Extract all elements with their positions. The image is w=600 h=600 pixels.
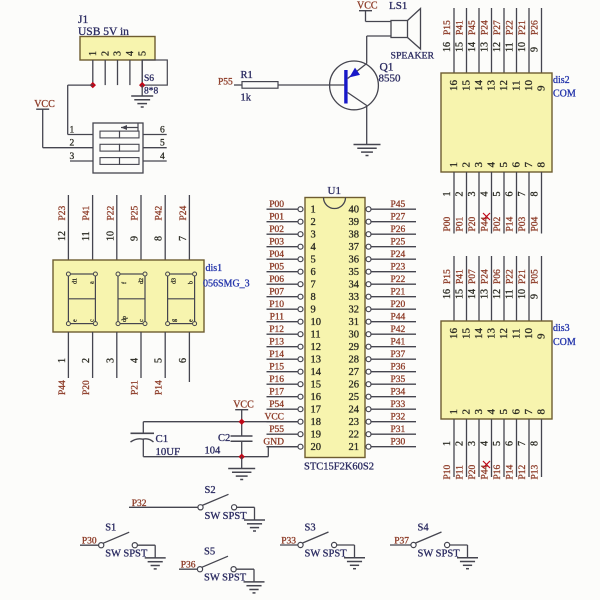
svg-text:6: 6 [511, 409, 523, 415]
svg-text:4: 4 [130, 358, 141, 363]
svg-text:P06: P06 [269, 275, 284, 285]
svg-text:P00: P00 [269, 200, 284, 210]
svg-text:VCC: VCC [34, 99, 55, 110]
svg-text:P55: P55 [218, 78, 233, 88]
svg-text:16: 16 [442, 42, 453, 52]
svg-text:P13: P13 [269, 337, 284, 347]
svg-text:4: 4 [125, 51, 136, 56]
svg-text:P21: P21 [131, 380, 141, 395]
svg-text:5: 5 [160, 139, 165, 149]
svg-text:P42: P42 [155, 205, 165, 220]
svg-text:P30: P30 [391, 437, 406, 447]
svg-text:3: 3 [311, 230, 316, 241]
svg-text:15: 15 [311, 380, 322, 391]
svg-text:35: 35 [349, 267, 360, 278]
svg-text:23: 23 [349, 417, 360, 428]
svg-text:10: 10 [517, 42, 528, 52]
svg-text:P22: P22 [506, 269, 516, 284]
svg-text:38: 38 [349, 230, 360, 241]
svg-text:40: 40 [349, 205, 360, 216]
svg-text:P23: P23 [58, 205, 68, 220]
svg-text:31: 31 [349, 317, 360, 328]
svg-text:P22: P22 [106, 205, 116, 220]
svg-text:S2: S2 [205, 485, 216, 496]
svg-text:P20: P20 [468, 216, 478, 231]
svg-text:25: 25 [349, 392, 360, 403]
svg-text:P35: P35 [391, 375, 406, 385]
svg-text:16: 16 [311, 392, 322, 403]
svg-text:P11: P11 [270, 312, 285, 322]
svg-text:3: 3 [473, 162, 485, 168]
svg-text:P01: P01 [269, 212, 284, 222]
svg-text:SW SPST: SW SPST [418, 549, 461, 560]
svg-text:P26: P26 [531, 20, 541, 35]
svg-text:37: 37 [349, 242, 360, 253]
svg-text:36: 36 [349, 255, 360, 266]
svg-text:14: 14 [311, 367, 322, 378]
svg-text:20: 20 [311, 442, 322, 453]
svg-text:3: 3 [473, 409, 485, 415]
svg-text:dp: dp [122, 316, 128, 322]
svg-text:P22: P22 [506, 20, 516, 35]
svg-text:10: 10 [105, 231, 116, 241]
svg-text:P26: P26 [391, 225, 406, 235]
svg-text:15: 15 [461, 328, 473, 340]
svg-text:P23: P23 [391, 262, 406, 272]
svg-text:P54: P54 [269, 400, 284, 410]
svg-text:P12: P12 [518, 464, 528, 479]
svg-text:P04: P04 [531, 216, 541, 231]
svg-text:9: 9 [536, 333, 548, 339]
svg-text:P21: P21 [518, 20, 528, 35]
svg-text:P15: P15 [269, 362, 284, 372]
svg-text:7: 7 [523, 409, 535, 415]
svg-text:P16: P16 [493, 464, 503, 479]
svg-text:C1: C1 [156, 433, 169, 445]
svg-text:33: 33 [349, 292, 360, 303]
svg-text:10: 10 [523, 80, 535, 92]
svg-text:8: 8 [311, 292, 316, 303]
svg-text:13: 13 [311, 355, 322, 366]
svg-text:6: 6 [311, 267, 316, 278]
svg-text:P33: P33 [391, 400, 406, 410]
svg-text:P22: P22 [391, 275, 406, 285]
svg-text:34: 34 [349, 280, 360, 291]
svg-text:P34: P34 [391, 387, 406, 397]
svg-text:P24: P24 [179, 205, 189, 220]
svg-text:7: 7 [523, 162, 535, 168]
svg-text:8: 8 [536, 409, 548, 415]
svg-text:4: 4 [480, 192, 491, 197]
svg-text:P27: P27 [391, 212, 406, 222]
svg-text:5: 5 [311, 255, 316, 266]
svg-text:3: 3 [467, 192, 478, 197]
svg-text:P16: P16 [269, 375, 284, 385]
svg-text:27: 27 [349, 367, 360, 378]
svg-text:P25: P25 [391, 237, 406, 247]
svg-text:11: 11 [81, 231, 92, 241]
svg-text:13: 13 [486, 80, 498, 92]
svg-text:STC15F2K60S2: STC15F2K60S2 [304, 462, 374, 473]
svg-text:P02: P02 [269, 225, 284, 235]
svg-text:S6: S6 [144, 74, 154, 84]
svg-text:8: 8 [154, 236, 165, 241]
svg-text:P41: P41 [391, 337, 406, 347]
svg-text:P36: P36 [391, 362, 406, 372]
svg-text:12: 12 [57, 231, 68, 241]
svg-text:P00: P00 [443, 216, 453, 231]
svg-text:4: 4 [160, 152, 165, 162]
svg-text:P42: P42 [391, 325, 406, 335]
svg-text:14: 14 [467, 42, 478, 52]
svg-text:3: 3 [113, 51, 124, 56]
svg-text:14: 14 [473, 328, 485, 340]
svg-text:P32: P32 [391, 412, 406, 422]
svg-text:1k: 1k [241, 93, 252, 104]
svg-text:30: 30 [349, 330, 360, 341]
svg-text:5: 5 [498, 409, 510, 415]
svg-text:12: 12 [498, 328, 510, 339]
svg-text:11: 11 [511, 328, 523, 339]
svg-text:15: 15 [455, 42, 466, 52]
svg-text:P01: P01 [456, 216, 466, 231]
svg-text:16: 16 [448, 328, 460, 340]
svg-text:6: 6 [505, 441, 516, 446]
svg-text:5: 5 [154, 358, 165, 363]
svg-text:VCC: VCC [357, 1, 378, 12]
svg-text:GND: GND [263, 437, 284, 447]
svg-text:P14: P14 [269, 350, 284, 360]
svg-text:104: 104 [205, 446, 222, 457]
svg-text:S3: S3 [305, 523, 316, 534]
svg-text:9: 9 [530, 294, 541, 299]
svg-text:9: 9 [530, 47, 541, 52]
svg-text:P03: P03 [518, 216, 528, 231]
svg-text:19: 19 [311, 430, 322, 441]
svg-text:17: 17 [311, 405, 322, 416]
svg-text:VCC: VCC [264, 412, 284, 422]
svg-text:P20: P20 [468, 464, 478, 479]
svg-text:P41: P41 [456, 20, 466, 35]
svg-text:dis3: dis3 [553, 323, 570, 334]
svg-text:14: 14 [467, 289, 478, 299]
svg-text:2: 2 [70, 139, 75, 149]
svg-text:P14: P14 [155, 380, 165, 395]
svg-text:d1: d1 [72, 278, 78, 284]
svg-text:f: f [121, 282, 128, 284]
svg-text:P21: P21 [391, 287, 406, 297]
svg-text:6: 6 [511, 162, 523, 168]
svg-text:C2: C2 [218, 433, 230, 444]
svg-text:8: 8 [536, 162, 548, 168]
svg-text:P14: P14 [506, 464, 516, 479]
svg-text:3: 3 [70, 152, 75, 162]
svg-text:15: 15 [455, 289, 466, 299]
svg-text:11: 11 [505, 42, 516, 52]
svg-text:39: 39 [349, 217, 360, 228]
svg-text:P12: P12 [269, 325, 284, 335]
svg-text:2: 2 [461, 162, 473, 168]
svg-text:22: 22 [349, 430, 360, 441]
svg-text:16: 16 [448, 80, 460, 92]
svg-text:P55: P55 [269, 425, 284, 435]
svg-text:11: 11 [505, 289, 516, 299]
svg-text:1: 1 [448, 409, 460, 415]
svg-text:1: 1 [448, 162, 460, 168]
svg-text:P15: P15 [443, 20, 453, 35]
svg-text:P10: P10 [443, 464, 453, 479]
svg-text:4: 4 [486, 162, 498, 168]
svg-text:1: 1 [57, 358, 68, 363]
svg-text:e: e [72, 319, 78, 322]
svg-text:10: 10 [517, 289, 528, 299]
svg-text:U1: U1 [328, 185, 341, 197]
svg-text:P11: P11 [456, 465, 466, 480]
svg-text:P10: P10 [269, 300, 284, 310]
svg-text:8*8: 8*8 [144, 87, 159, 97]
svg-text:P14: P14 [506, 216, 516, 231]
svg-text:9: 9 [130, 236, 141, 241]
svg-text:7: 7 [517, 192, 528, 197]
svg-text:P45: P45 [391, 200, 406, 210]
svg-text:1: 1 [442, 192, 453, 197]
svg-text:SW SPST: SW SPST [105, 549, 148, 560]
svg-text:2: 2 [311, 217, 316, 228]
svg-text:5: 5 [492, 441, 503, 446]
svg-text:6: 6 [505, 192, 516, 197]
svg-text:SW SPST: SW SPST [205, 511, 248, 522]
svg-text:J1: J1 [78, 14, 88, 26]
svg-text:1: 1 [88, 51, 99, 56]
svg-text:6: 6 [160, 125, 165, 135]
svg-text:c: c [139, 319, 145, 322]
svg-text:S5: S5 [204, 547, 215, 558]
svg-text:9: 9 [536, 85, 548, 91]
svg-text:COM: COM [553, 89, 576, 100]
svg-text:2: 2 [461, 409, 473, 415]
svg-text:4: 4 [486, 409, 498, 415]
svg-text:P24: P24 [481, 269, 491, 284]
svg-text:P25: P25 [131, 205, 141, 220]
svg-text:056SMG_3: 056SMG_3 [203, 279, 250, 290]
svg-text:P20: P20 [391, 300, 406, 310]
svg-text:5: 5 [137, 51, 148, 56]
svg-text:16: 16 [442, 289, 453, 299]
svg-text:P06: P06 [493, 269, 503, 284]
svg-text:LS1: LS1 [389, 0, 407, 12]
svg-text:13: 13 [480, 42, 491, 52]
svg-text:12: 12 [311, 342, 322, 353]
svg-text:1: 1 [70, 125, 75, 135]
svg-text:P05: P05 [531, 269, 541, 284]
svg-text:4: 4 [311, 242, 317, 253]
svg-text:S1: S1 [105, 523, 116, 534]
svg-text:P37: P37 [391, 350, 406, 360]
svg-text:10UF: 10UF [156, 446, 181, 458]
svg-text:VCC: VCC [233, 400, 254, 411]
svg-text:P24: P24 [391, 250, 406, 260]
svg-text:P41: P41 [456, 269, 466, 284]
svg-text:P07: P07 [269, 287, 284, 297]
svg-text:2: 2 [81, 358, 92, 363]
svg-text:12: 12 [492, 42, 503, 52]
svg-text:2: 2 [455, 192, 466, 197]
svg-text:P13: P13 [531, 464, 541, 479]
svg-text:P21: P21 [518, 269, 528, 284]
svg-text:12: 12 [492, 289, 503, 299]
svg-text:13: 13 [486, 328, 498, 340]
svg-text:P04: P04 [269, 250, 284, 260]
svg-text:12: 12 [498, 80, 510, 91]
svg-text:11: 11 [311, 330, 321, 341]
svg-text:P27: P27 [493, 20, 503, 35]
svg-text:a: a [89, 281, 95, 284]
svg-text:P41: P41 [82, 205, 92, 220]
svg-text:32: 32 [349, 305, 360, 316]
svg-text:10: 10 [523, 328, 535, 340]
svg-text:3: 3 [467, 441, 478, 446]
svg-text:SW SPST: SW SPST [305, 549, 348, 560]
svg-text:SPEAKER: SPEAKER [391, 51, 435, 62]
svg-text:d2: d2 [139, 278, 145, 284]
svg-text:8: 8 [530, 441, 541, 446]
svg-text:g: g [172, 319, 178, 322]
svg-text:P17: P17 [269, 387, 284, 397]
svg-text:26: 26 [349, 380, 360, 391]
svg-text:7: 7 [311, 280, 316, 291]
svg-text:b: b [189, 281, 195, 284]
svg-text:COM: COM [553, 337, 576, 348]
svg-text:28: 28 [349, 355, 360, 366]
svg-text:5: 5 [492, 192, 503, 197]
svg-text:24: 24 [349, 405, 360, 416]
svg-text:dis2: dis2 [553, 75, 570, 86]
svg-text:e: e [189, 319, 195, 322]
svg-text:10: 10 [311, 317, 322, 328]
svg-text:18: 18 [311, 417, 322, 428]
svg-text:P15: P15 [443, 269, 453, 284]
svg-text:dis1: dis1 [206, 263, 223, 274]
svg-text:P20: P20 [82, 380, 92, 395]
svg-text:13: 13 [480, 289, 491, 299]
svg-text:c: c [89, 319, 95, 322]
svg-text:1: 1 [311, 205, 316, 216]
svg-text:21: 21 [349, 442, 360, 453]
svg-text:2: 2 [100, 51, 111, 56]
svg-text:8: 8 [530, 192, 541, 197]
svg-text:P05: P05 [269, 262, 284, 272]
svg-text:3: 3 [105, 358, 116, 363]
svg-text:6: 6 [178, 358, 189, 363]
svg-text:7: 7 [517, 441, 528, 446]
svg-text:2: 2 [455, 441, 466, 446]
svg-text:7: 7 [178, 236, 189, 241]
svg-text:P03: P03 [269, 237, 284, 247]
svg-text:8550: 8550 [379, 73, 402, 85]
svg-text:14: 14 [473, 80, 485, 92]
svg-text:d3: d3 [172, 278, 178, 284]
svg-text:4: 4 [480, 441, 491, 446]
svg-text:P31: P31 [391, 425, 406, 435]
svg-text:11: 11 [511, 80, 523, 91]
svg-text:29: 29 [349, 342, 360, 353]
svg-text:P24: P24 [481, 20, 491, 35]
svg-text:P44: P44 [391, 312, 406, 322]
svg-text:P02: P02 [493, 216, 503, 231]
svg-text:5: 5 [498, 162, 510, 168]
svg-text:S4: S4 [418, 523, 430, 534]
svg-text:P45: P45 [468, 20, 478, 35]
svg-text:15: 15 [461, 80, 473, 92]
svg-text:P07: P07 [468, 269, 478, 284]
svg-text:P44: P44 [58, 380, 68, 395]
svg-text:1: 1 [442, 441, 453, 446]
svg-text:R1: R1 [241, 70, 253, 81]
svg-text:9: 9 [311, 305, 316, 316]
svg-text:SW SPST: SW SPST [204, 573, 247, 584]
